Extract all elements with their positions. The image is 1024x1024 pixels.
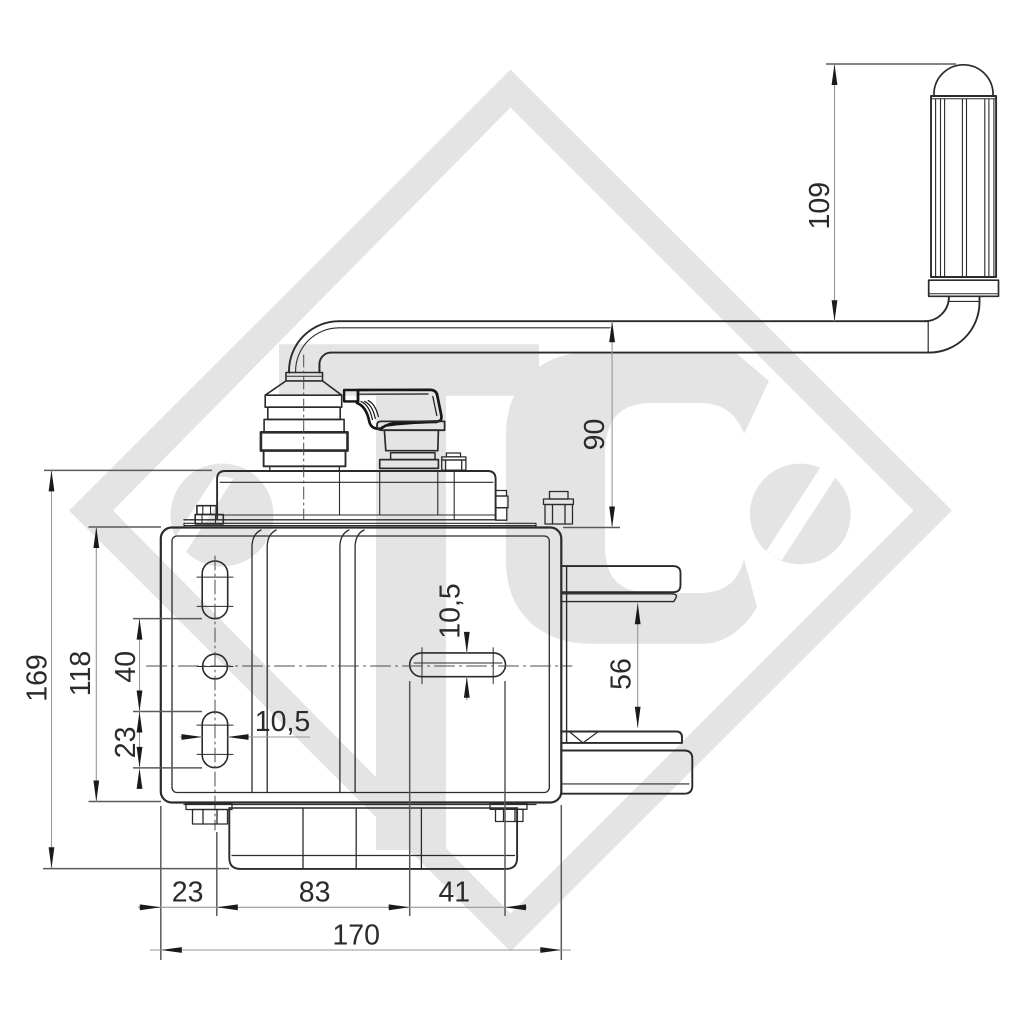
svg-text:41: 41 bbox=[438, 877, 470, 909]
svg-text:10,5: 10,5 bbox=[255, 706, 310, 738]
svg-text:23: 23 bbox=[172, 877, 204, 909]
svg-text:170: 170 bbox=[332, 919, 380, 951]
svg-text:83: 83 bbox=[299, 877, 331, 909]
svg-text:56: 56 bbox=[606, 658, 638, 690]
svg-text:23: 23 bbox=[110, 727, 142, 759]
svg-text:169: 169 bbox=[22, 654, 54, 702]
svg-text:10,5: 10,5 bbox=[435, 583, 467, 638]
svg-text:90: 90 bbox=[579, 419, 611, 451]
svg-text:40: 40 bbox=[110, 651, 142, 683]
svg-text:118: 118 bbox=[65, 651, 97, 696]
svg-text:109: 109 bbox=[804, 182, 836, 230]
